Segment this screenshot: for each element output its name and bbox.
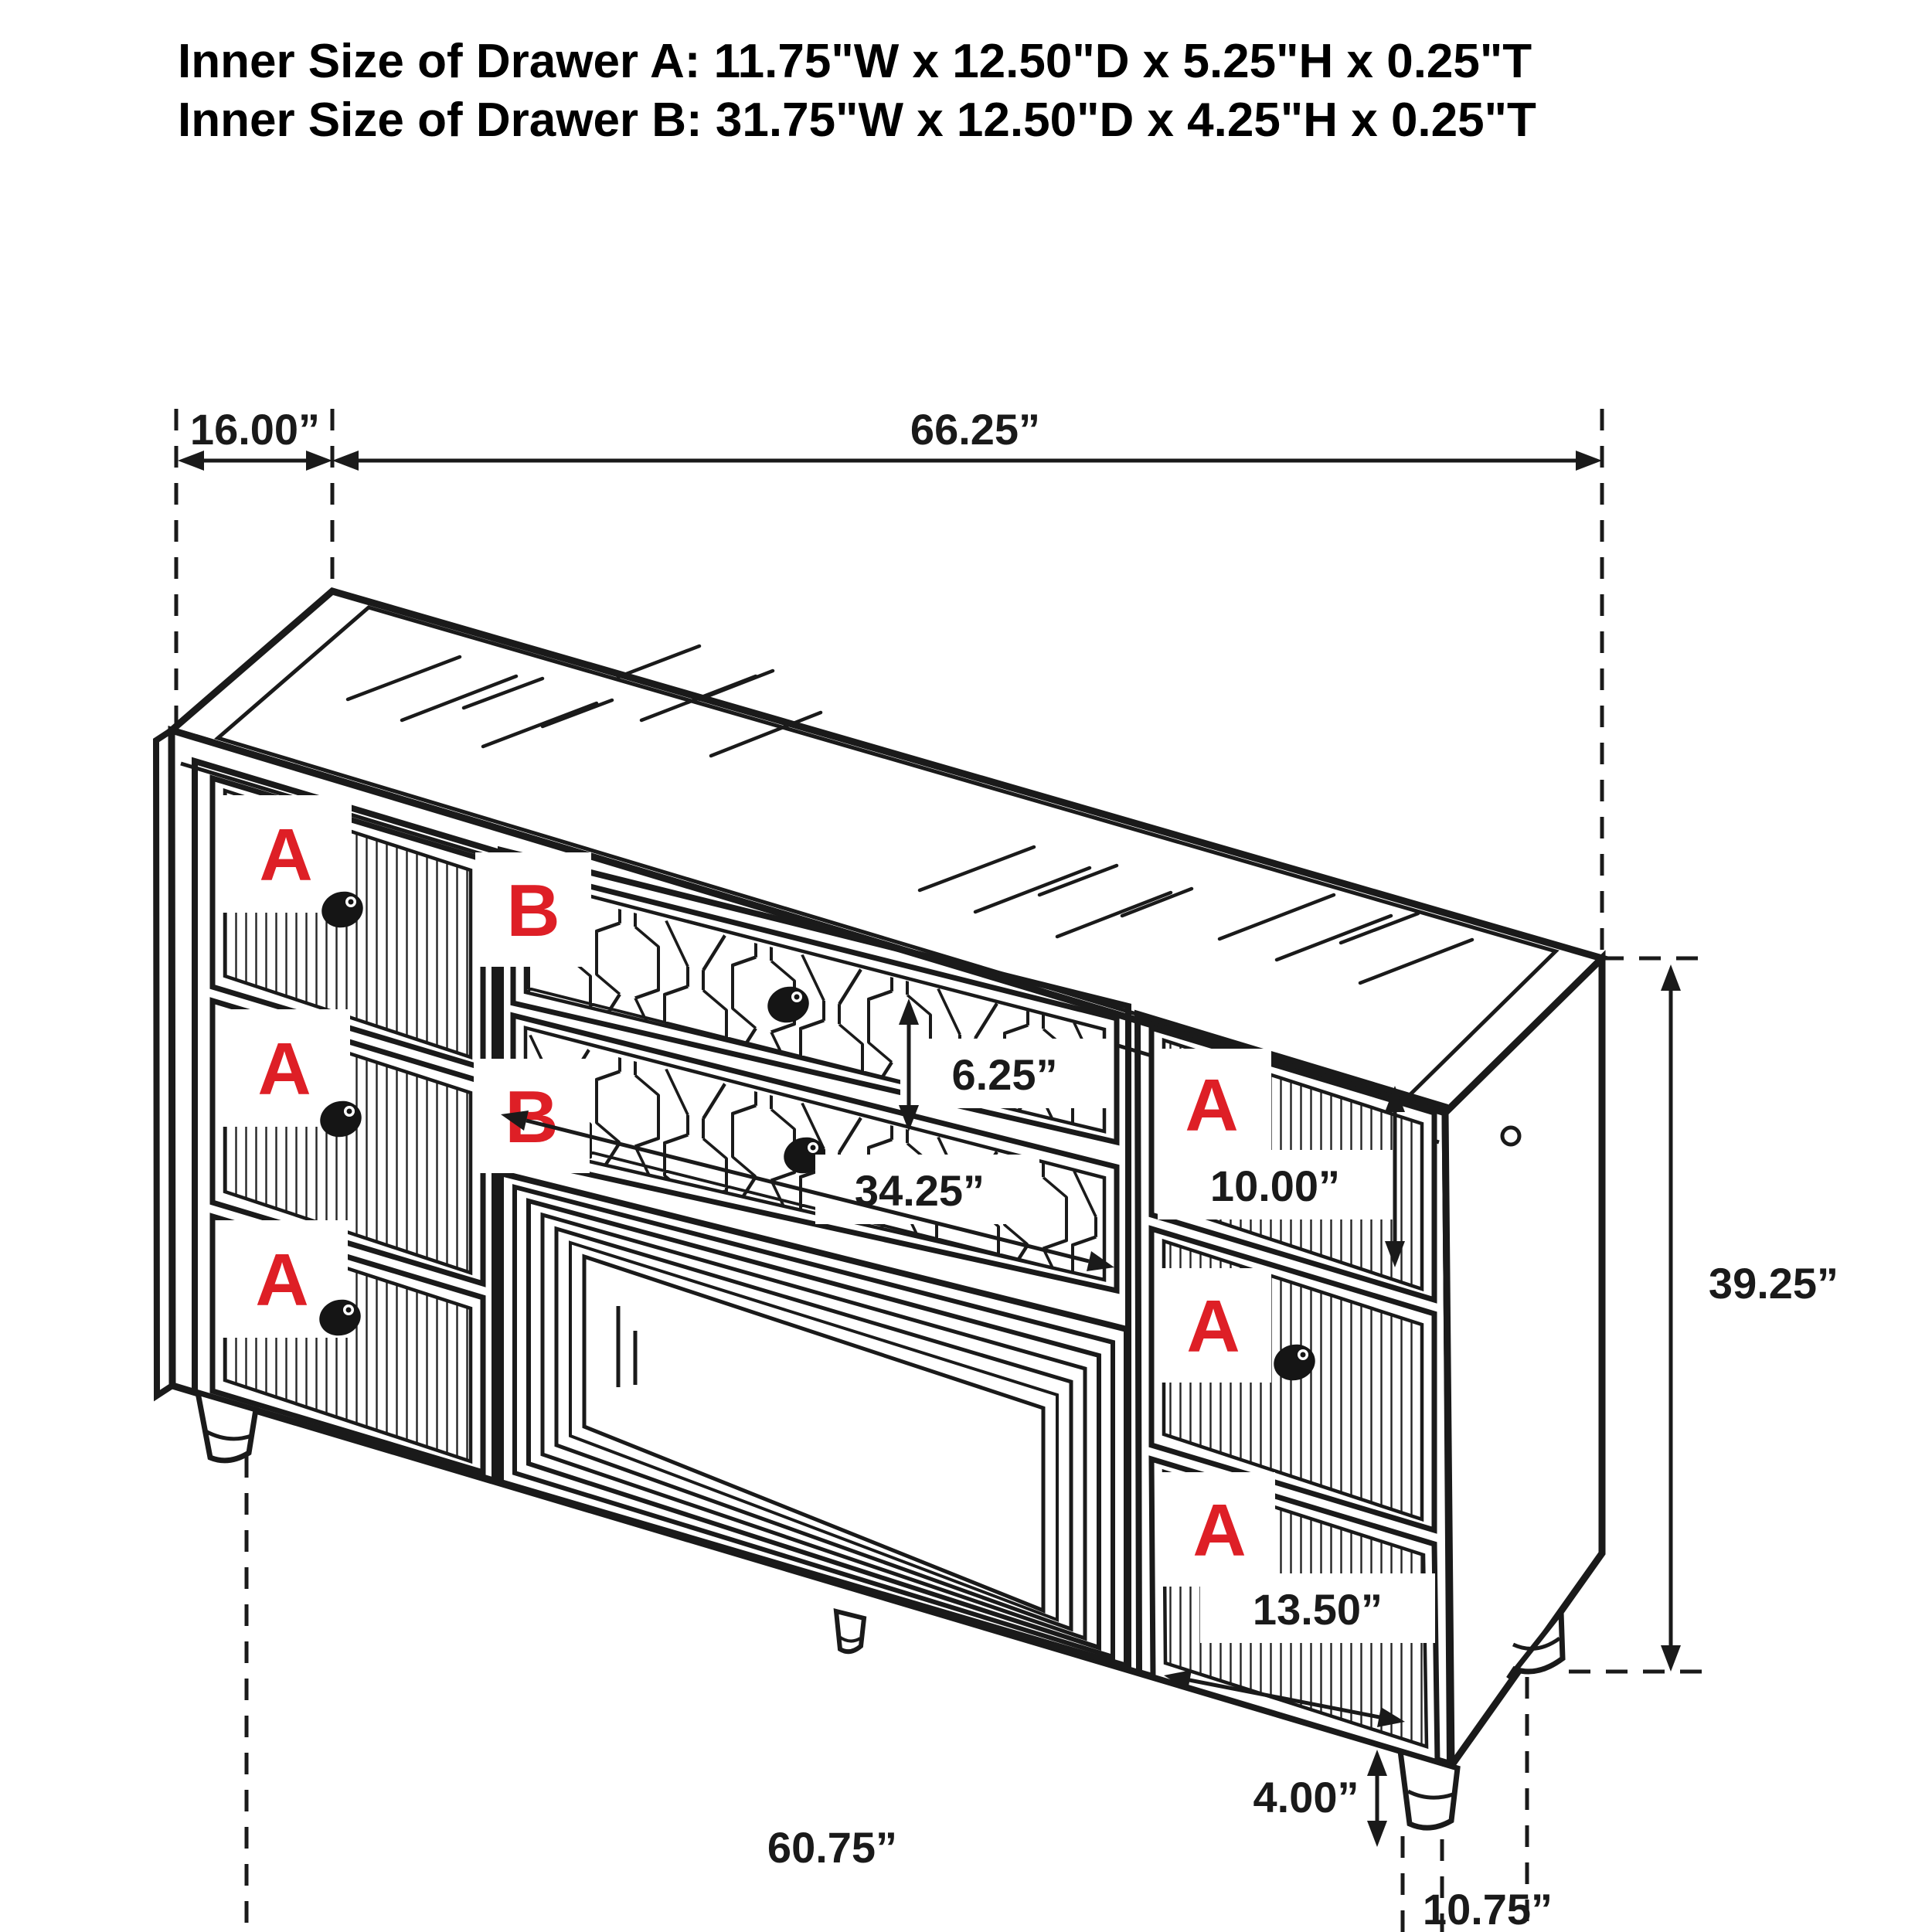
svg-text:34.25”: 34.25” — [855, 1166, 985, 1215]
svg-text:66.25”: 66.25” — [910, 405, 1040, 454]
svg-text:13.50”: 13.50” — [1253, 1585, 1383, 1634]
svg-text:10.75”: 10.75” — [1423, 1885, 1553, 1932]
drawer-label-b1: B — [506, 869, 560, 952]
svg-text:60.75”: 60.75” — [767, 1823, 897, 1872]
dimension-leg-height: 4.00” — [1253, 1750, 1388, 1847]
center-support-peg — [836, 1611, 864, 1651]
svg-text:10.00”: 10.00” — [1210, 1162, 1340, 1210]
drawer-label-a3: A — [255, 1239, 308, 1321]
drawer-label-a6: A — [1192, 1489, 1246, 1572]
dresser-dimension-diagram: Inner Size of Drawer A: 11.75"W x 12.50"… — [0, 0, 1932, 1932]
drawer-label-a1: A — [259, 814, 312, 896]
dimension-cabinet-height: 39.25” — [1569, 958, 1838, 1672]
dresser-dimension-diagram-page: Inner Size of Drawer A: 11.75"W x 12.50"… — [0, 0, 1932, 1932]
title-line-1: Inner Size of Drawer A: 11.75"W x 12.50"… — [178, 35, 1532, 88]
svg-text:39.25”: 39.25” — [1709, 1259, 1838, 1308]
title-line-2: Inner Size of Drawer B: 31.75"W x 12.50"… — [178, 94, 1536, 147]
svg-text:4.00”: 4.00” — [1253, 1773, 1359, 1821]
svg-text:16.00”: 16.00” — [190, 405, 320, 454]
drawer-label-a2: A — [257, 1028, 311, 1111]
svg-text:6.25”: 6.25” — [952, 1050, 1058, 1099]
drawer-label-a5: A — [1186, 1285, 1240, 1368]
drawer-label-a4: A — [1185, 1064, 1238, 1147]
